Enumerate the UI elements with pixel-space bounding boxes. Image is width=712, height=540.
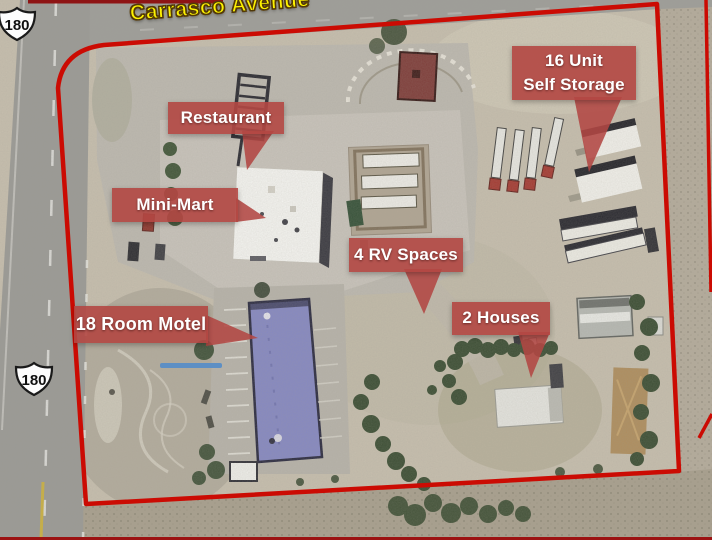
callout-mini-mart: Mini-Mart <box>112 188 238 222</box>
route-number: 180 <box>4 17 29 34</box>
aerial-property-map: Carrasco Avenue 180 180 Restaurant Mini-… <box>0 0 712 540</box>
route-number: 180 <box>21 372 46 389</box>
callout-self-storage: 16 Unit Self Storage <box>512 46 636 100</box>
callout-self-storage-line1: 16 Unit <box>523 49 625 73</box>
callout-self-storage-text: 16 Unit Self Storage <box>523 49 625 97</box>
callout-houses: 2 Houses <box>452 302 550 335</box>
callout-self-storage-line2: Self Storage <box>523 73 625 97</box>
callout-restaurant: Restaurant <box>168 102 284 134</box>
callout-motel: 18 Room Motel <box>74 306 208 343</box>
callout-rv-spaces: 4 RV Spaces <box>349 238 463 272</box>
us-route-180-shield-top: 180 <box>0 6 37 47</box>
us-route-180-shield-bottom: 180 <box>14 361 54 402</box>
motel-underline-mark <box>160 363 222 368</box>
